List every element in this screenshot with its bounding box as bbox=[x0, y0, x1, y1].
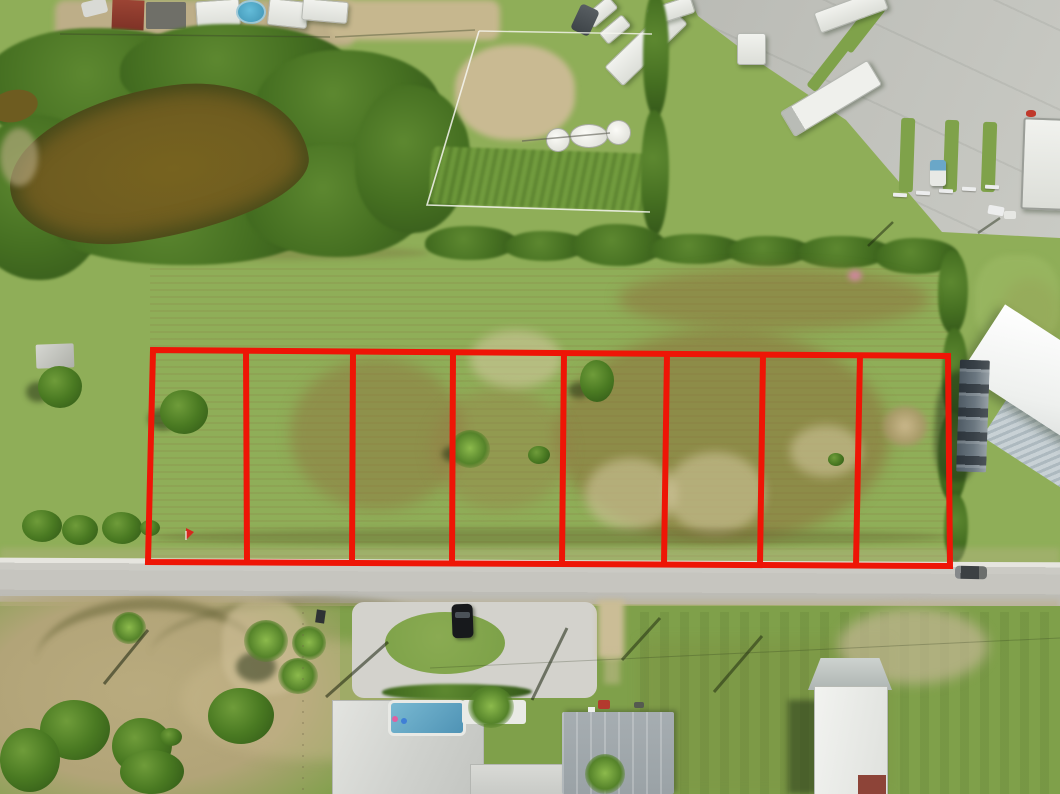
swimming-pool bbox=[388, 700, 466, 736]
palm-tree bbox=[468, 686, 514, 728]
tree bbox=[120, 750, 184, 794]
gray-deck bbox=[146, 2, 186, 29]
palm-tree bbox=[244, 620, 288, 662]
round-pool bbox=[236, 0, 266, 24]
hedge-column bbox=[643, 0, 669, 117]
car-windshield bbox=[455, 612, 470, 618]
black-car bbox=[451, 604, 473, 639]
palm-tree bbox=[292, 626, 326, 660]
bush bbox=[828, 453, 844, 466]
tree bbox=[208, 688, 274, 744]
dirt-circle bbox=[882, 406, 928, 446]
gravel-path bbox=[598, 600, 624, 658]
pool-float-pink bbox=[392, 716, 398, 722]
box-truck bbox=[737, 33, 766, 65]
hedge-column bbox=[641, 110, 669, 235]
car-on-road bbox=[955, 566, 987, 580]
gravel-path bbox=[604, 652, 620, 684]
tree bbox=[38, 366, 82, 408]
dirt-strip bbox=[330, 0, 500, 40]
tree bbox=[0, 728, 60, 792]
red-object bbox=[598, 700, 610, 709]
palm-tree bbox=[112, 612, 146, 644]
brown-patch bbox=[618, 268, 930, 330]
wheel-stop bbox=[962, 187, 976, 192]
house-facade bbox=[956, 360, 990, 473]
tree bbox=[580, 360, 614, 402]
trash-bin bbox=[315, 609, 326, 623]
palm-tree bbox=[278, 658, 318, 694]
tall-grass bbox=[429, 146, 656, 212]
wheel-stop bbox=[916, 191, 930, 196]
parking-median bbox=[899, 118, 916, 192]
pond-bank bbox=[0, 128, 38, 186]
pool-float-blue bbox=[401, 718, 407, 724]
bare-patch bbox=[665, 452, 765, 534]
tree bbox=[160, 390, 208, 434]
bush bbox=[140, 520, 160, 536]
hedge-vertical bbox=[938, 250, 968, 334]
picnic-table bbox=[634, 702, 644, 708]
palm-tree bbox=[585, 754, 625, 794]
paddock-fence bbox=[479, 31, 652, 34]
red-roof-shed bbox=[111, 0, 144, 31]
tree bbox=[62, 515, 98, 545]
tree bbox=[102, 512, 142, 544]
hedgerow bbox=[425, 226, 517, 260]
bare-patch bbox=[790, 425, 862, 477]
white-cart bbox=[1004, 211, 1016, 219]
tree bbox=[22, 510, 62, 542]
aerial-photo bbox=[0, 0, 1060, 794]
rv-trailer bbox=[1020, 117, 1060, 210]
septic-tank bbox=[570, 124, 608, 148]
red-object bbox=[1026, 110, 1036, 117]
palm-tree bbox=[450, 430, 490, 468]
trailer bbox=[301, 0, 349, 24]
wheel-stop bbox=[985, 185, 999, 190]
rooftop-unit bbox=[588, 707, 595, 712]
red-roof-structure bbox=[858, 775, 886, 794]
septic-tank bbox=[546, 128, 570, 152]
paddock-dirt bbox=[455, 45, 575, 140]
bare-patch bbox=[470, 330, 562, 388]
parking-median bbox=[981, 122, 997, 192]
wheel-stop bbox=[939, 189, 953, 194]
bare-patch bbox=[585, 458, 677, 530]
septic-tank bbox=[606, 120, 631, 145]
ditch bbox=[152, 528, 952, 546]
small-shed bbox=[36, 343, 75, 368]
pink-debris bbox=[848, 270, 862, 281]
bush bbox=[160, 728, 182, 746]
wheel-stop bbox=[893, 193, 907, 198]
golf-cart bbox=[930, 160, 946, 186]
driveway-island bbox=[385, 612, 505, 674]
bush bbox=[528, 446, 550, 464]
